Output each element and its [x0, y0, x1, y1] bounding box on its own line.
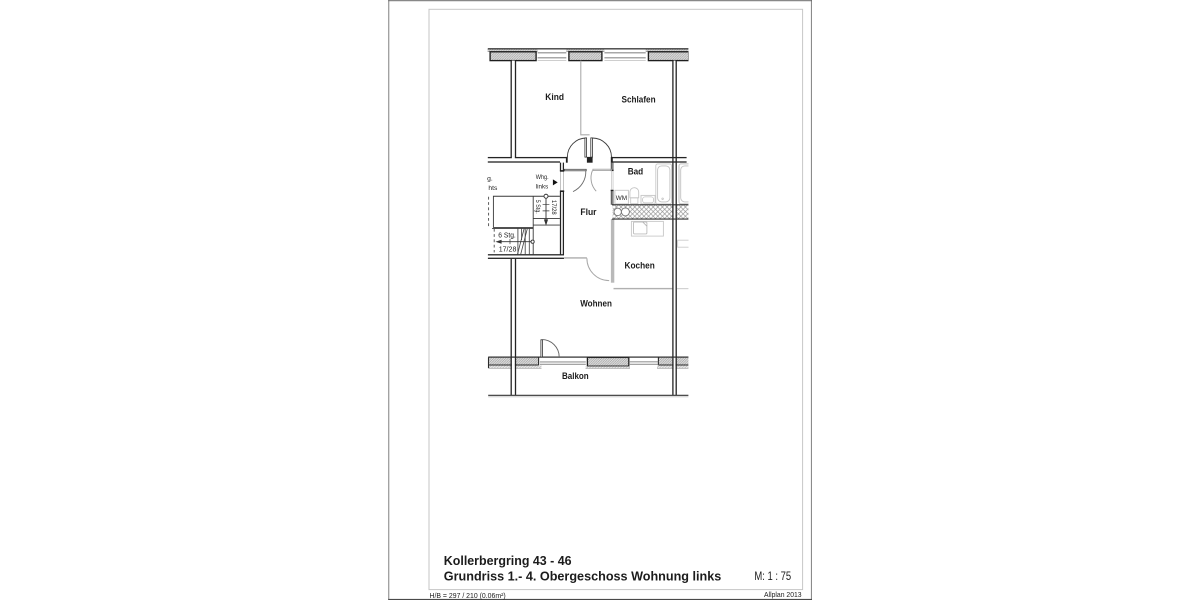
svg-text:H/B = 297 / 210 (0.06m²): H/B = 297 / 210 (0.06m²): [430, 593, 506, 600]
svg-text:WM: WM: [616, 195, 627, 202]
svg-text:Flur: Flur: [580, 206, 596, 217]
svg-text:g.: g.: [487, 175, 493, 182]
svg-text:5 Stg.: 5 Stg.: [534, 200, 541, 214]
svg-text:6 Stg.: 6 Stg.: [498, 231, 516, 240]
svg-text:M: 1 : 75: M: 1 : 75: [754, 570, 791, 583]
svg-text:17/28: 17/28: [550, 200, 557, 215]
svg-text:Allplan 2013: Allplan 2013: [764, 592, 802, 599]
svg-text:links: links: [536, 183, 549, 190]
svg-text:Schlafen: Schlafen: [622, 94, 656, 105]
svg-text:Kochen: Kochen: [625, 260, 656, 271]
svg-text:hts: hts: [488, 185, 498, 192]
svg-text:Whg.: Whg.: [536, 174, 549, 181]
svg-text:17/28: 17/28: [499, 244, 517, 253]
svg-text:Kind: Kind: [545, 91, 564, 102]
svg-text:Wohnen: Wohnen: [580, 298, 612, 309]
svg-text:Grundriss 1.- 4. Obergeschoss: Grundriss 1.- 4. Obergeschoss Wohnung li…: [444, 569, 722, 584]
svg-text:Bad: Bad: [628, 166, 644, 177]
svg-text:Balkon: Balkon: [562, 370, 589, 381]
svg-text:Kollerbergring 43 - 46: Kollerbergring 43 - 46: [444, 553, 572, 568]
